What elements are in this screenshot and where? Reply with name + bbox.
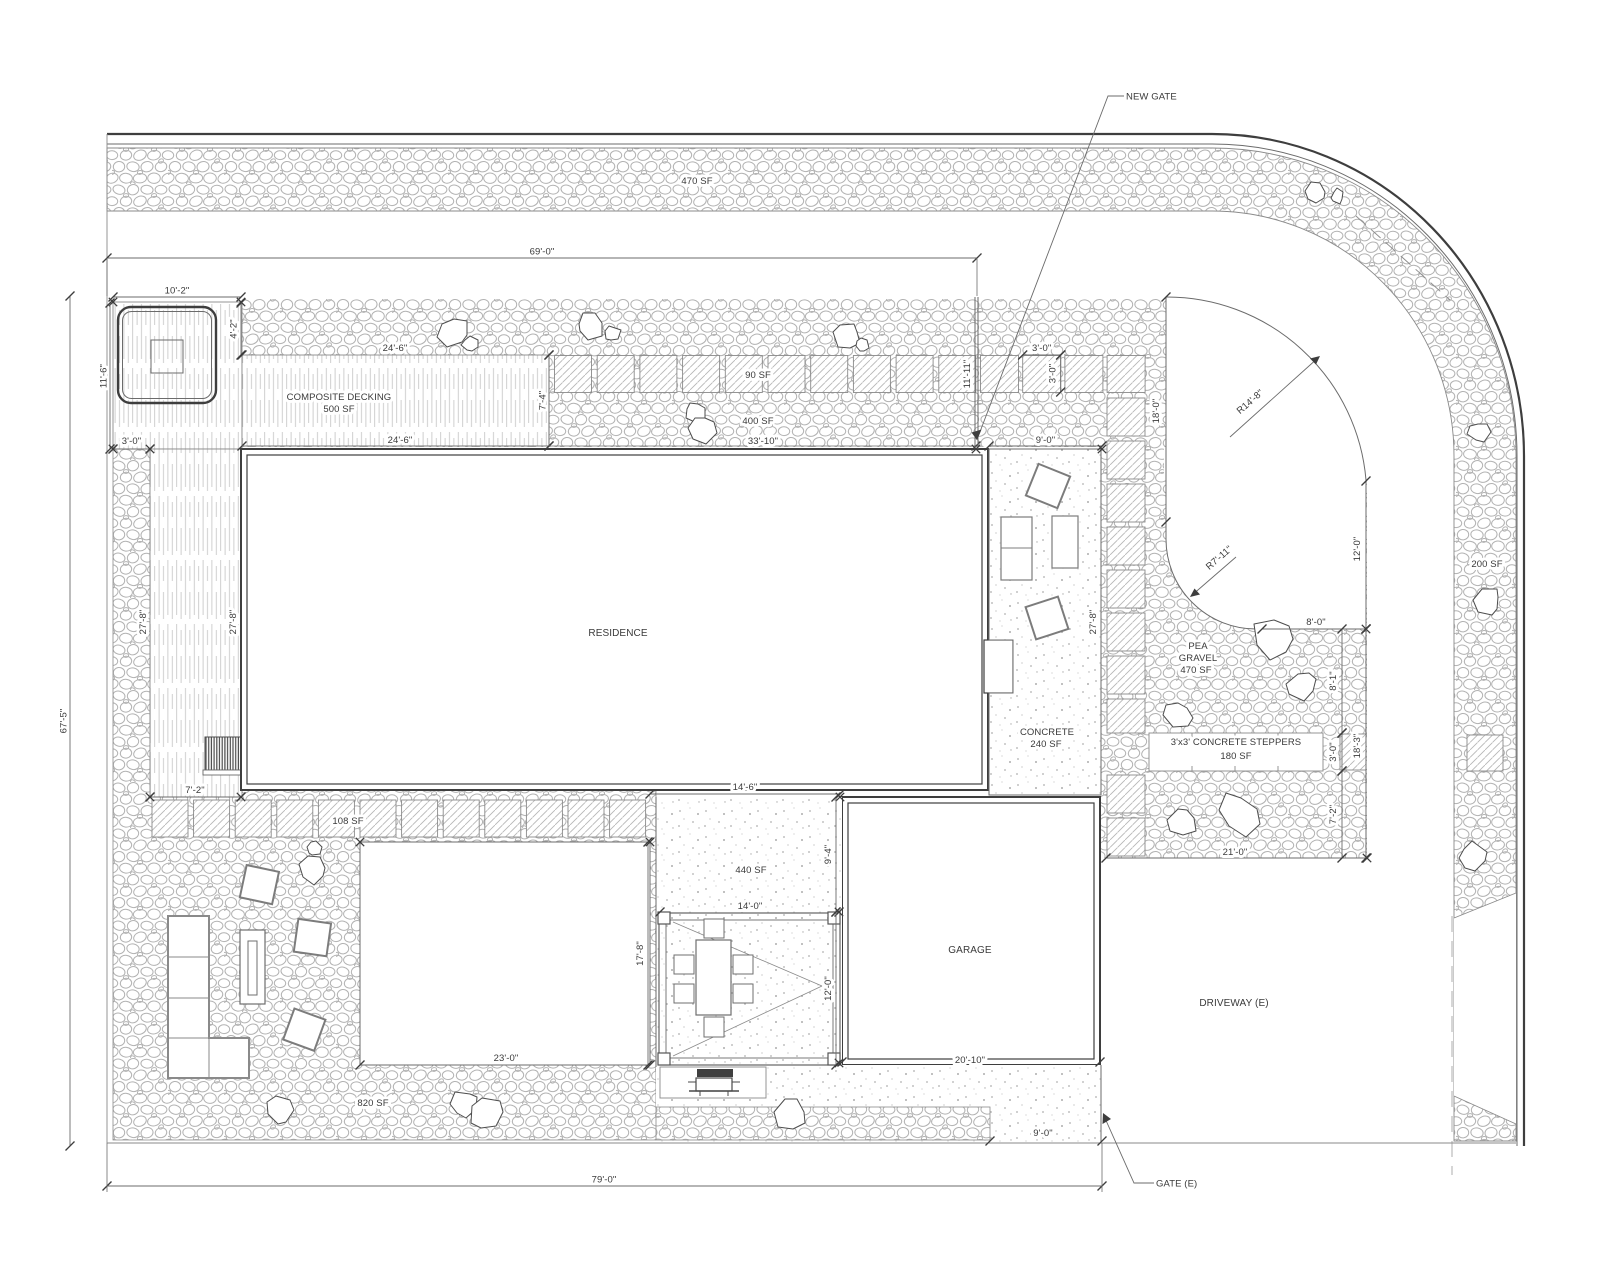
svg-text:12'-0": 12'-0"	[823, 976, 834, 1001]
svg-text:440 SF: 440 SF	[735, 865, 766, 876]
svg-text:DRIVEWAY (E): DRIVEWAY (E)	[1199, 998, 1268, 1009]
svg-text:7'-2": 7'-2"	[1328, 805, 1339, 824]
svg-text:27'-8": 27'-8"	[138, 610, 149, 635]
svg-text:9'-0": 9'-0"	[1036, 435, 1055, 446]
svg-text:8'-1": 8'-1"	[1328, 671, 1339, 690]
svg-text:3'-0": 3'-0"	[1048, 364, 1059, 383]
svg-text:9'-0": 9'-0"	[1033, 1128, 1052, 1139]
svg-text:10'-2": 10'-2"	[165, 286, 190, 297]
svg-text:24'-6": 24'-6"	[388, 435, 413, 446]
svg-text:67'-5": 67'-5"	[59, 709, 70, 734]
svg-text:33'-10": 33'-10"	[748, 436, 778, 447]
svg-text:24'-6": 24'-6"	[383, 343, 408, 354]
svg-text:9'-4": 9'-4"	[823, 845, 834, 864]
svg-text:GATE (E): GATE (E)	[1156, 1179, 1197, 1190]
svg-text:69'-0": 69'-0"	[530, 247, 555, 258]
svg-text:200 SF: 200 SF	[1471, 559, 1502, 570]
svg-text:90 SF: 90 SF	[745, 370, 771, 381]
svg-text:3'-0": 3'-0"	[1032, 343, 1051, 354]
svg-text:79'-0": 79'-0"	[592, 1175, 617, 1186]
svg-text:21'-0": 21'-0"	[1223, 847, 1248, 858]
svg-text:18'-0": 18'-0"	[1151, 399, 1162, 424]
svg-text:180 SF: 180 SF	[1220, 751, 1251, 762]
svg-text:20'-10": 20'-10"	[955, 1055, 985, 1066]
svg-text:11'-11": 11'-11"	[962, 360, 973, 389]
svg-text:3'x3' CONCRETE STEPPERS: 3'x3' CONCRETE STEPPERS	[1171, 737, 1302, 748]
svg-text:NEW GATE: NEW GATE	[1126, 92, 1177, 103]
svg-text:PEA: PEA	[1188, 641, 1208, 652]
svg-text:17'-8": 17'-8"	[635, 941, 646, 966]
svg-text:400 SF: 400 SF	[742, 416, 773, 427]
svg-text:14'-0": 14'-0"	[738, 901, 763, 912]
svg-text:12'-0": 12'-0"	[1352, 537, 1363, 562]
svg-text:CONCRETE: CONCRETE	[1020, 727, 1074, 738]
svg-text:18'-3": 18'-3"	[1352, 734, 1363, 759]
svg-text:470 SF: 470 SF	[1180, 665, 1211, 676]
svg-text:GARAGE: GARAGE	[948, 945, 992, 956]
svg-text:27'-8": 27'-8"	[228, 610, 239, 635]
svg-text:240 SF: 240 SF	[1030, 739, 1061, 750]
svg-text:820 SF: 820 SF	[357, 1098, 388, 1109]
svg-text:4'-2": 4'-2"	[229, 319, 240, 338]
svg-text:470 SF: 470 SF	[681, 176, 712, 187]
svg-text:500 SF: 500 SF	[323, 404, 354, 415]
svg-text:GRAVEL: GRAVEL	[1179, 653, 1217, 664]
svg-text:7'-2": 7'-2"	[185, 785, 204, 796]
svg-text:23'-0": 23'-0"	[494, 1053, 519, 1064]
svg-text:108 SF: 108 SF	[332, 816, 363, 827]
svg-text:11'-6": 11'-6"	[99, 364, 110, 388]
svg-text:7'-4": 7'-4"	[538, 391, 549, 410]
svg-text:COMPOSITE DECKING: COMPOSITE DECKING	[287, 392, 392, 403]
svg-text:14'-6": 14'-6"	[733, 782, 758, 793]
svg-text:RESIDENCE: RESIDENCE	[588, 628, 647, 639]
svg-text:27'-8": 27'-8"	[1088, 610, 1099, 635]
svg-text:8'-0": 8'-0"	[1306, 617, 1325, 628]
svg-text:3'-0": 3'-0"	[122, 436, 141, 447]
svg-text:3'-0": 3'-0"	[1328, 742, 1339, 761]
